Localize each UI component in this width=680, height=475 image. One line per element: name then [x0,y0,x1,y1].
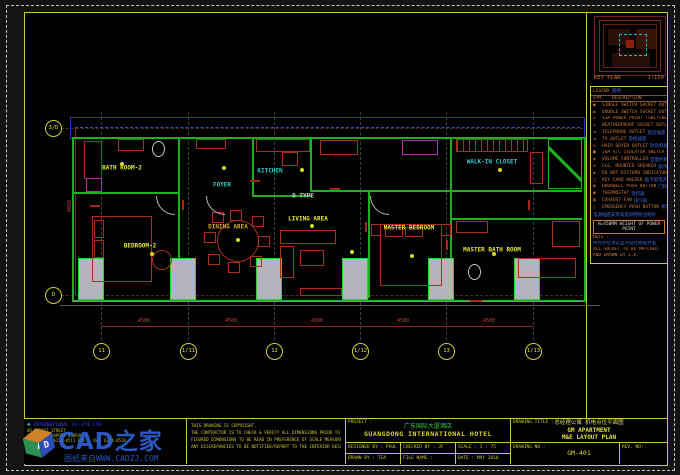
note-line: ALL SOCKET TO BE MATCHED [591,247,667,253]
annotation-mark [90,205,100,207]
legend-row: ◉ DOORBELL PUSH BUTTON 门铃按钮 [591,184,667,191]
light-symbol [498,168,502,172]
legend-title: LEGEND [593,89,609,94]
grid-bubble: 1/11 [180,343,197,360]
legend-symbol-icon: ▪ [593,171,602,176]
height-note-box: H=450MM HEIGHT OF POWER POINT [593,220,665,234]
legend-row: ▨ EXHAUST FAN 排气扇 [591,197,667,204]
copyright-line: THE CONTRACTOR IS TO CHECK & VERIFY ALL … [191,429,341,436]
room-label: BEDROOM-2 [124,243,157,250]
ahu-unit [402,140,438,155]
legend-row: ⊥ WEATHERPROOF SOCKET OUTLET 防水电源插座 [591,122,667,129]
closet-unit [320,140,358,155]
kitchen-counter [256,139,310,152]
drawing-number: GM-401 [541,449,617,457]
file-name-field: FILE NAME : [400,454,455,464]
drawing-title-en2: M&E LAYOUT PLAN [511,434,667,441]
note-line: 所有点位须以室内设计图纸为准 [591,241,667,247]
chair [228,262,240,273]
room-label: B TYPE [292,193,314,200]
project-name-cn: 广东国际大厦酒店 [346,423,510,430]
partition-wall [450,190,582,192]
wardrobe [530,152,543,184]
legend-symbol-icon: ⊥ [593,123,602,128]
light-symbol [350,250,354,254]
legend-row: ▣ THERMOSTAT 温控器 [591,190,667,197]
legend-row: ⊥ 13A POWER POINT (SWITCHED) 带开关电源插座 [591,116,667,123]
annotation-mark [446,240,448,250]
copyright-line: ANY DISCREPANCIES TO BE NOTIFIED/REPORT … [191,443,341,450]
appliance [282,152,298,166]
legend-panel: LEGEND 图例 SYM. DESCRIPTION ● SINGLE SWIT… [590,86,668,264]
shower [552,221,580,247]
wardrobe [456,139,528,152]
cad-drawing-sheet[interactable]: 11 1/11 12 1/12 13 1/13 3/D [0,0,680,475]
vanity [118,139,144,151]
room-label: FOYER [213,182,231,189]
grid-bubble: 1/13 [525,343,542,360]
annotation-mark [330,188,340,190]
project-name-en: GUANGDONG INTERNATIONAL HOTEL [346,430,510,438]
annotation-mark [182,200,184,210]
vanity [456,221,488,233]
console-table [196,139,226,149]
copyright-notes-cell: THIS DRAWING IS COPYRIGHT.THE CONTRACTOR… [186,419,345,464]
nightstand [441,224,451,236]
toilet [152,141,165,157]
room-label: MASTER BEDROOM [384,225,435,232]
room-label: WALK-IN CLOSET [467,159,518,166]
legend-row: □ KEY CARD HOLDER 插卡取电开关 [591,177,667,184]
legend-symbol-icon: ◄ [593,137,602,142]
service-shaft [548,139,582,189]
grid-bubble: 3/D [45,120,62,137]
chair [230,210,242,221]
company-logo-icon: ◈ [27,421,31,428]
partition-wall [310,137,312,192]
chair [258,236,270,247]
annotation-mark [470,300,482,302]
checked-by-field: CHECKED BY : JF [400,443,455,453]
fixture [86,178,102,192]
window-sill [72,301,582,302]
partition-wall [310,190,452,192]
partition-wall [368,192,370,298]
chair [208,254,220,265]
dimension-label: 4500 [397,318,409,324]
legend-symbol-icon: □ [593,178,602,183]
legend-symbol-icon: ◄ [593,130,602,135]
right-panel-divider [586,12,587,419]
legend-header-sym: SYM. [593,96,604,101]
ground-line [60,305,600,306]
legend-symbol-icon: ● [593,103,602,108]
date-field: DATE : MAY 2010 [455,454,510,464]
legend-symbol-icon: ■ [593,150,602,155]
annotation-mark [528,200,530,210]
dimension-label: 4500 [138,318,150,324]
designed-by-field: DESIGNED BY : PAUL [346,443,400,453]
legend-row: ◄ TV OUTLET 电视插座 [591,136,667,143]
revision-label: REV. NO: [619,443,667,464]
room-label: DINING AREA [208,224,248,231]
height-note-cn: 电源插座安装高度除特别注明外 [591,211,667,219]
legend-row: △ EMERGENCY PUSH BUTTON 紧急按钮 [591,204,667,211]
chair [252,216,264,227]
project-cell: PROJECT : 广东国际大厦酒店 GUANGDONG INTERNATION… [345,419,510,464]
legend-row: ● SINGLE SWITCH SOCKET OUTLET 单联开关插座 [591,102,667,109]
key-plan-scale: 1:150 [647,75,664,81]
legend-symbol-icon: ⊙ [593,144,602,149]
grid-bubble: 1/12 [352,343,369,360]
partition-wall [252,137,254,197]
legend-symbol-icon: ◉ [593,184,602,189]
annotation-mark [365,222,367,232]
pillow [94,240,104,258]
legend-row: ■ 20A A/C ISOLATOR SWITCH 空调隔离开关 [591,150,667,157]
chair [250,256,262,267]
grid-bubble: 12 [266,343,283,360]
chair [204,232,216,243]
bathtub [84,141,102,179]
room-label: LIVING AREA [288,216,328,223]
legend-symbol-icon: ⊥ [593,116,602,121]
sofa [280,246,294,278]
light-symbol [410,254,414,258]
legend-title-cn: 图例 [612,89,621,94]
room-label: BATH ROOM-2 [102,165,142,172]
dimension-line-bottom [101,326,533,327]
rug [152,250,172,270]
room-label: KITCHEN [257,168,282,175]
key-plan-label: KEY PLAN [594,75,621,81]
dimension-label: 4500 [225,318,237,324]
legend-symbol-icon: △ [593,205,602,210]
scale-field: SCALE : 1 : 75 [455,443,510,453]
copyright-line: THIS DRAWING IS COPYRIGHT. [191,422,341,429]
drawn-by-field: DRAWN BY : TEA [346,454,400,464]
legend-symbol-icon: ◐ [593,110,602,115]
legend-symbol-icon: ◍ [593,157,602,162]
key-plan-map [594,16,666,76]
drawing-title-cell: DRAWING TITLE : 总经理公寓 机电点位平面图 GM APARTME… [510,419,667,464]
legend-row: ⊕ CLG. MOUNTED SPEAKER 吸顶扬声器 [591,163,667,170]
column [342,258,368,300]
note-line: AND DRAWN BY I.D. [591,253,667,259]
pillow [94,220,104,238]
legend-row: ◐ DOUBLE SWITCH SOCKET OUTLET 双联开关插座 [591,109,667,116]
light-symbol [222,166,226,170]
legend-row: ◄ TELEPHONE OUTLET 电话插座 [591,129,667,136]
sofa [280,230,336,244]
light-symbol [310,224,314,228]
dimension-label: 4500 [483,318,495,324]
legend-symbol-icon: ⊕ [593,164,602,169]
dimension-label: 4500 [311,318,323,324]
drawing-title-cn: 总经理公寓 机电点位平面图 [511,420,667,427]
partition-wall [72,192,178,194]
tv-cabinet [300,288,342,296]
toilet [468,264,481,280]
bathtub [518,258,576,278]
legend-row: ▪ DO NOT DISTURB INDICATOR 请勿打扰显示 [591,170,667,177]
corridor-outline [70,117,585,139]
legend-symbol-icon: ▣ [593,191,602,196]
grid-bubble: 11 [93,343,110,360]
company-cell: ◈ INTERNATIONAL (S) PTE LTD 6B MARKET ST… [24,419,186,464]
light-symbol [150,252,154,256]
coffee-table [300,250,324,266]
grid-bubble: D [45,287,62,304]
nightstand [371,224,381,236]
column [170,258,196,300]
partition-wall [450,218,582,220]
grid-bubble: 13 [438,343,455,360]
light-symbol [236,238,240,242]
legend-symbol-icon: ▨ [593,198,602,203]
copyright-line: FIGURED DIMENSIONS TO BE READ IN PREFERE… [191,436,341,443]
legend-header-desc: DESCRIPTION [612,96,642,101]
room-label: MASTER BATH ROOM [463,247,521,254]
legend-row: ⊙ HAIR DRYER OUTLET 吹风机插座 [591,143,667,150]
legend-row: ◍ VOLUME CONTROLLER 音量控制器 [591,156,667,163]
drawing-title-en1: GM APARTMENT [511,427,667,434]
annotation-mark [250,180,260,182]
company-address: TEL : (65) 6224-0511 FAX : (65) 6224-051… [27,438,183,443]
light-symbol [300,168,304,172]
